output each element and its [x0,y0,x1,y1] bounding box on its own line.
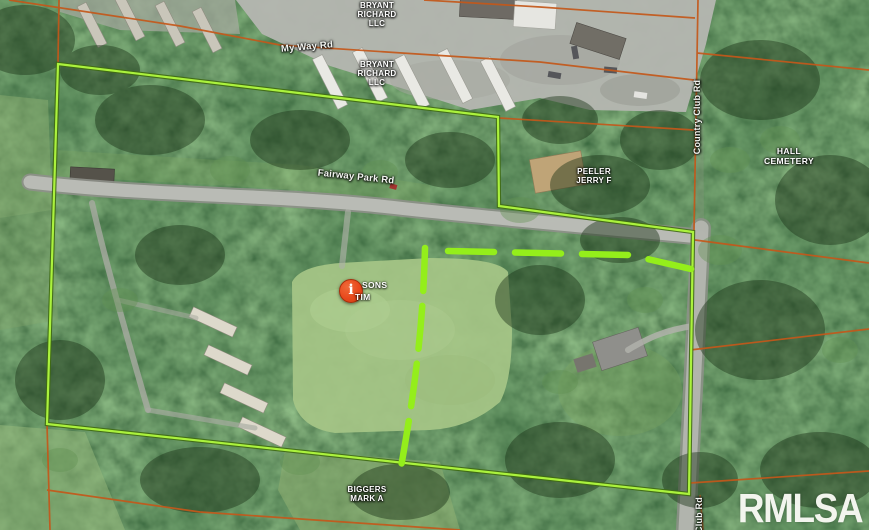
rmlsa-watermark: RMLSA [738,488,862,529]
pin-info-glyph: i [348,283,353,297]
property-pin-icon[interactable]: i [339,279,363,303]
map-canvas[interactable]: BRYANT RICHARD LLC My Way Rd BRYANT RICH… [0,0,869,530]
aerial-imagery [0,0,869,530]
